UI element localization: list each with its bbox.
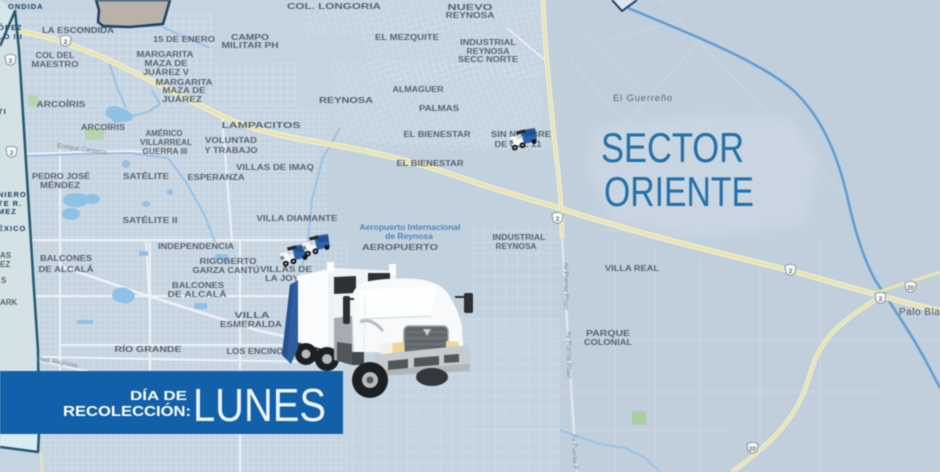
svg-text:Y TRABAJO: Y TRABAJO	[205, 146, 258, 155]
svg-text:ARK: ARK	[0, 298, 18, 307]
svg-text:PEDRO JOSÉ: PEDRO JOSÉ	[32, 172, 91, 181]
svg-text:MEZ: MEZ	[0, 207, 17, 216]
svg-text:COLONIAL: COLONIAL	[584, 338, 632, 347]
svg-text:MÉNDEZ: MÉNDEZ	[40, 181, 80, 190]
svg-text:GUERRA III: GUERRA III	[143, 147, 188, 156]
svg-text:VILLA REAL: VILLA REAL	[605, 264, 659, 273]
svg-text:TI: TI	[0, 107, 7, 116]
svg-text:MILITAR PH: MILITAR PH	[222, 41, 279, 50]
svg-text:El Guerreño: El Guerreño	[613, 93, 673, 104]
svg-text:2: 2	[9, 58, 13, 65]
svg-text:EL MEZQUITE: EL MEZQUITE	[375, 33, 440, 42]
svg-text:AS: AS	[0, 251, 12, 260]
svg-text:DE ALCALÁ: DE ALCALÁ	[168, 290, 227, 299]
svg-text:LOS ENCINOS: LOS ENCINOS	[227, 347, 291, 356]
svg-text:BALCONES: BALCONES	[40, 254, 93, 263]
svg-text:SATÉLITE II: SATÉLITE II	[123, 216, 178, 225]
svg-text:Av Puente P: Av Puente P	[570, 434, 578, 470]
svg-text:20: 20	[749, 447, 756, 453]
svg-text:JUÁREZ V: JUÁREZ V	[143, 68, 190, 77]
svg-text:NIERO: NIERO	[0, 190, 27, 199]
svg-text:2: 2	[789, 268, 793, 275]
svg-text:20: 20	[907, 286, 914, 292]
svg-text:VILLAS DE IMAQ: VILLAS DE IMAQ	[236, 163, 314, 172]
svg-text:PALMAS: PALMAS	[419, 104, 460, 113]
svg-text:ORIENTE: ORIENTE	[604, 168, 754, 215]
svg-text:SATÉLITE: SATÉLITE	[123, 172, 170, 181]
svg-text:VOLUNTAD: VOLUNTAD	[205, 136, 257, 145]
svg-text:VILLA DIAMANTE: VILLA DIAMANTE	[257, 214, 339, 223]
svg-text:EZ: EZ	[0, 260, 10, 269]
svg-text:Av Puente Pharr: Av Puente Pharr	[565, 331, 572, 379]
svg-text:REYNOSA: REYNOSA	[496, 242, 537, 251]
svg-text:15 DE ENERO: 15 DE ENERO	[153, 35, 215, 44]
svg-text:SECC NORTE: SECC NORTE	[458, 55, 519, 64]
svg-text:RIGOBERTO: RIGOBERTO	[200, 257, 257, 266]
svg-text:LUNES: LUNES	[193, 379, 326, 431]
svg-text:AMÉRICO: AMÉRICO	[146, 129, 183, 138]
svg-text:EL BIENESTAR: EL BIENESTAR	[397, 159, 464, 168]
svg-text:SECTOR: SECTOR	[601, 124, 744, 171]
svg-text:2: 2	[556, 216, 560, 223]
svg-text:DÍA DE: DÍA DE	[130, 388, 187, 403]
svg-text:ONDIDA: ONDIDA	[8, 2, 44, 11]
svg-text:MAZA DE: MAZA DE	[163, 86, 207, 95]
svg-text:REYNOSA: REYNOSA	[319, 96, 373, 105]
svg-text:ÉXICO: ÉXICO	[0, 224, 26, 233]
svg-text:VILLARREAL: VILLARREAL	[140, 138, 192, 147]
svg-text:2: 2	[64, 39, 68, 46]
svg-text:LAMPACITOS: LAMPACITOS	[222, 121, 302, 130]
svg-text:INDUSTRIAL: INDUSTRIAL	[493, 233, 546, 242]
svg-text:GARZA CANTÚ: GARZA CANTÚ	[193, 266, 260, 275]
svg-text:ESPERANZA: ESPERANZA	[188, 173, 245, 182]
svg-text:Palo Bla: Palo Bla	[899, 307, 940, 318]
svg-text:ARCOÍRIS: ARCOÍRIS	[37, 100, 87, 109]
svg-text:LO III: LO III	[0, 32, 23, 41]
svg-text:de Reynosa: de Reynosa	[385, 231, 433, 241]
svg-text:INDUSTRIAL: INDUSTRIAL	[460, 38, 516, 47]
svg-text:COL DEL: COL DEL	[36, 51, 75, 60]
svg-text:LA ESCONDIDA: LA ESCONDIDA	[42, 26, 114, 35]
svg-text:AEROPUERTO: AEROPUERTO	[362, 243, 438, 252]
svg-text:EL BIENESTAR: EL BIENESTAR	[404, 130, 471, 139]
svg-text:JUÁREZ: JUÁREZ	[162, 95, 202, 104]
svg-text:2: 2	[10, 150, 14, 157]
svg-text:ALMAGUER: ALMAGUER	[393, 85, 444, 94]
svg-text:Av Puente Pharr: Av Puente Pharr	[562, 262, 569, 310]
svg-text:RÍO GRANDE: RÍO GRANDE	[115, 345, 183, 354]
svg-text:ARCOÍRIS: ARCOÍRIS	[81, 123, 126, 132]
svg-text:BALCONES: BALCONES	[172, 281, 225, 290]
svg-text:MARGARITA: MARGARITA	[137, 50, 194, 59]
svg-text:VILLA: VILLA	[235, 311, 270, 320]
svg-text:S: S	[1, 276, 7, 285]
svg-text:2: 2	[879, 296, 883, 303]
svg-text:DE ALCALÁ: DE ALCALÁ	[39, 265, 94, 274]
svg-text:PARQUE: PARQUE	[586, 329, 631, 338]
svg-text:INDEPENDENCIA: INDEPENDENCIA	[158, 242, 234, 251]
svg-text:MAESTRO: MAESTRO	[32, 60, 79, 69]
svg-text:RECOLECCIÓN:: RECOLECCIÓN:	[63, 402, 191, 420]
svg-text:ÓPEZ: ÓPEZ	[0, 23, 22, 32]
svg-text:REYNOSA: REYNOSA	[446, 11, 495, 20]
svg-text:COL. LONGORIA: COL. LONGORIA	[287, 2, 381, 11]
svg-text:MAZA DE: MAZA DE	[145, 59, 189, 68]
svg-text:ESMERALDA: ESMERALDA	[220, 320, 282, 329]
